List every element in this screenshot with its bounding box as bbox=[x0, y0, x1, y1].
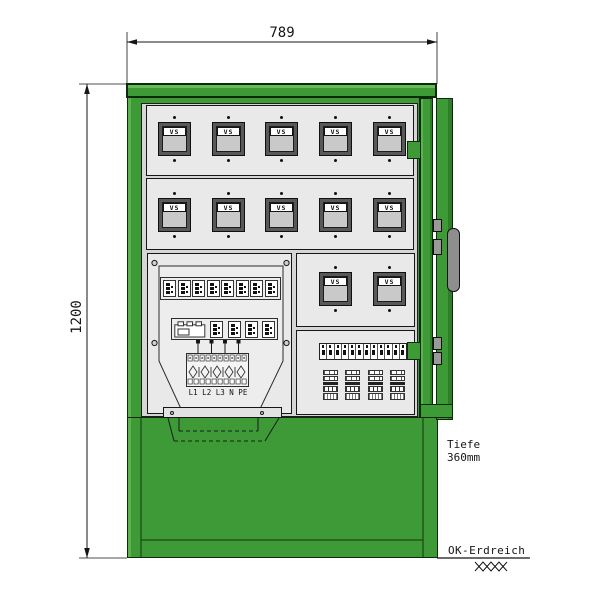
screw-dot bbox=[334, 309, 337, 312]
breaker bbox=[221, 280, 234, 297]
breaker bbox=[250, 280, 263, 297]
breaker bbox=[178, 280, 191, 297]
energy-meter: VS bbox=[373, 122, 406, 156]
dimension-width-label: 789 bbox=[252, 25, 312, 41]
cable-entry-flap bbox=[163, 407, 282, 418]
meter-label: VS bbox=[378, 277, 401, 286]
breaker bbox=[207, 280, 220, 297]
screw-dot bbox=[227, 116, 230, 119]
meter-label: VS bbox=[163, 127, 186, 136]
energy-meter: VS bbox=[319, 122, 352, 156]
breaker bbox=[265, 280, 278, 297]
door-hinge bbox=[407, 141, 421, 159]
energy-meter: VS bbox=[373, 272, 406, 306]
screw-dot bbox=[334, 266, 337, 269]
cabinet-roof bbox=[126, 83, 437, 98]
meter-label: VS bbox=[270, 127, 293, 136]
depth-label-line2: 360mm bbox=[447, 451, 480, 464]
energy-meter: VS bbox=[265, 122, 298, 156]
screw-dot bbox=[334, 116, 337, 119]
cabinet-body-lower bbox=[127, 417, 438, 558]
screw bbox=[260, 411, 264, 415]
screw-dot bbox=[173, 235, 176, 238]
door-latch bbox=[433, 219, 442, 232]
screw-dot bbox=[334, 192, 337, 195]
door-bottom-rail bbox=[420, 404, 453, 418]
screw-dot bbox=[388, 235, 391, 238]
energy-meter: VS bbox=[158, 198, 191, 232]
breaker bbox=[192, 280, 205, 297]
terminal-group bbox=[345, 370, 360, 400]
phase-label: L1 L2 L3 N PE bbox=[182, 388, 254, 397]
ground-label: OK-Erdreich bbox=[448, 544, 525, 557]
door-latch bbox=[433, 352, 442, 365]
din-rail bbox=[319, 343, 407, 360]
din-breaker bbox=[327, 344, 334, 359]
screw-dot bbox=[388, 159, 391, 162]
din-breaker bbox=[320, 344, 327, 359]
breaker-row-2 bbox=[171, 318, 278, 340]
meter-label: VS bbox=[378, 127, 401, 136]
depth-label-line1: Tiefe bbox=[447, 438, 480, 451]
door-latch bbox=[433, 239, 442, 255]
soil-marker-icon bbox=[475, 562, 507, 571]
main-switch bbox=[174, 321, 206, 338]
breaker bbox=[228, 321, 241, 338]
connector-lines bbox=[197, 340, 241, 353]
door-handle bbox=[447, 228, 460, 292]
meter-label: VS bbox=[217, 203, 240, 212]
screw-dot bbox=[388, 309, 391, 312]
breaker bbox=[245, 321, 258, 338]
din-breaker bbox=[393, 344, 400, 359]
screw-dot bbox=[227, 192, 230, 195]
screw-dot bbox=[173, 159, 176, 162]
distribution-panel: L1 L2 L3 N PE bbox=[147, 253, 292, 414]
screw-dot bbox=[227, 235, 230, 238]
door-latch bbox=[433, 337, 442, 350]
screw-dot bbox=[388, 116, 391, 119]
energy-meter: VS bbox=[373, 198, 406, 232]
din-breaker bbox=[349, 344, 356, 359]
din-breaker bbox=[385, 344, 392, 359]
breaker bbox=[262, 321, 275, 338]
din-breaker bbox=[335, 344, 342, 359]
screw-dot bbox=[280, 116, 283, 119]
energy-meter: VS bbox=[319, 272, 352, 306]
screw-dot bbox=[173, 192, 176, 195]
din-breaker bbox=[356, 344, 363, 359]
screw-dot bbox=[227, 159, 230, 162]
breaker-row-1 bbox=[160, 277, 281, 300]
din-breaker bbox=[371, 344, 378, 359]
din-breaker bbox=[400, 344, 406, 359]
terminal-group bbox=[368, 370, 383, 400]
energy-meter: VS bbox=[158, 122, 191, 156]
energy-meter: VS bbox=[212, 198, 245, 232]
dimension-height-label: 1200 bbox=[69, 293, 83, 341]
energy-meter: VS bbox=[212, 122, 245, 156]
din-breaker bbox=[342, 344, 349, 359]
meter-label: VS bbox=[324, 127, 347, 136]
door-hinge bbox=[407, 342, 421, 360]
meter-label: VS bbox=[163, 203, 186, 212]
screw-dot bbox=[334, 159, 337, 162]
screw bbox=[170, 411, 174, 415]
screw-dot bbox=[334, 235, 337, 238]
technical-drawing-cabinet: VS VS VS VS VS VS VS VS VS VS bbox=[0, 0, 600, 600]
energy-meter: VS bbox=[265, 198, 298, 232]
meter-label: VS bbox=[217, 127, 240, 136]
terminal-group bbox=[390, 370, 405, 400]
breaker bbox=[163, 280, 176, 297]
breaker bbox=[236, 280, 249, 297]
meter-label: VS bbox=[270, 203, 293, 212]
screw-dot bbox=[388, 192, 391, 195]
meter-label: VS bbox=[324, 277, 347, 286]
din-breaker bbox=[364, 344, 371, 359]
terminal-group bbox=[323, 370, 338, 400]
screw-dot bbox=[388, 266, 391, 269]
screw-dot bbox=[280, 159, 283, 162]
din-panel bbox=[296, 330, 415, 415]
energy-meter: VS bbox=[319, 198, 352, 232]
depth-label: Tiefe 360mm bbox=[447, 438, 480, 464]
terminal-strip bbox=[187, 354, 249, 387]
meter-label: VS bbox=[324, 203, 347, 212]
breaker bbox=[210, 321, 223, 338]
screw-dot bbox=[173, 116, 176, 119]
screw-dot bbox=[280, 192, 283, 195]
door-frame bbox=[420, 98, 433, 418]
meter-label: VS bbox=[378, 203, 401, 212]
din-breaker bbox=[378, 344, 385, 359]
screw-dot bbox=[280, 235, 283, 238]
